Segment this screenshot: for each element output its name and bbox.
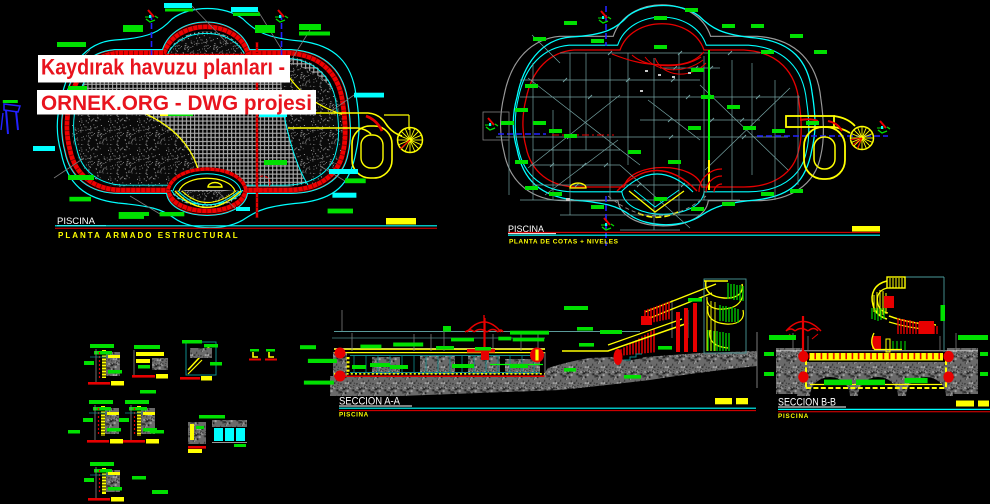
svg-text:Kaydırak havuzu planları -: Kaydırak havuzu planları - <box>41 55 285 80</box>
svg-text:PISCINA: PISCINA <box>778 413 809 420</box>
svg-text:ORNEK.ORG - DWG projesi: ORNEK.ORG - DWG projesi <box>41 92 312 115</box>
svg-text:PLANTA ARMADO ESTRUCTURAL: PLANTA ARMADO ESTRUCTURAL <box>58 231 240 240</box>
svg-text:PISCINA: PISCINA <box>339 412 369 419</box>
svg-text:PLANTA DE COTAS + NIVELES: PLANTA DE COTAS + NIVELES <box>509 239 619 246</box>
